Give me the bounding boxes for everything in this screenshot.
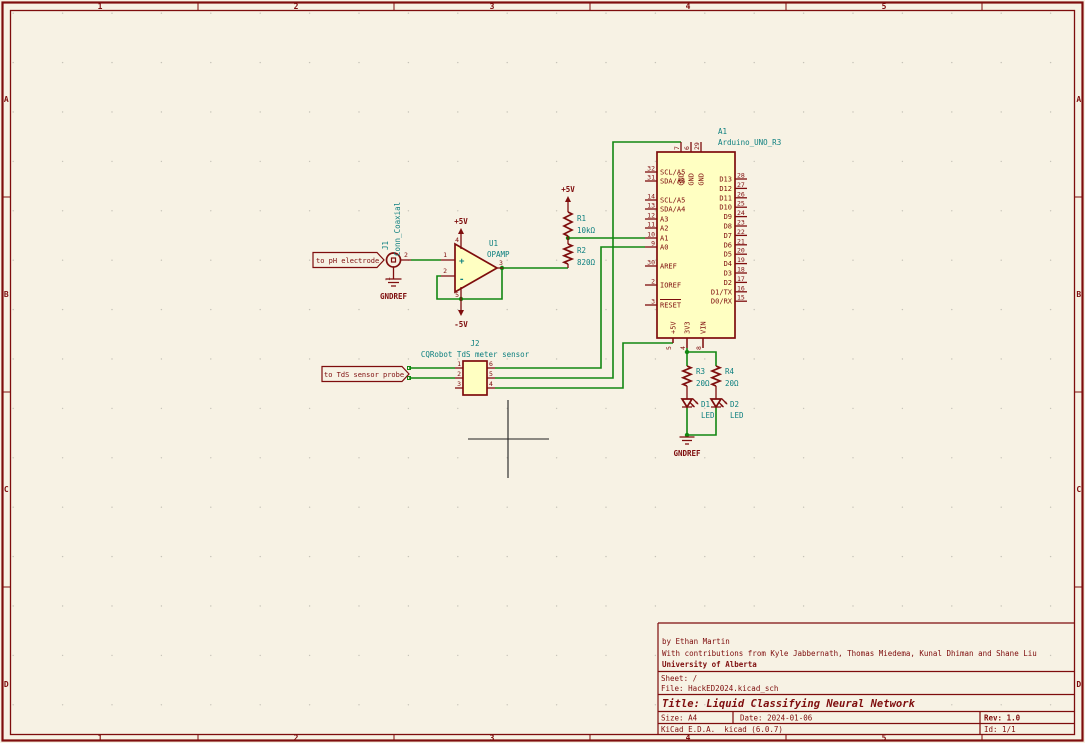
sheet-frame: 1122334455AABBCCDD — [3, 2, 1083, 743]
a1-pin-name-AREF: AREF — [660, 263, 677, 271]
r4-body — [712, 366, 720, 386]
d1-led-symbol[interactable] — [682, 399, 699, 408]
a1-pin-name-D10: D10 — [719, 204, 732, 212]
r2-value: 820Ω — [577, 258, 596, 267]
gnd-bars — [680, 437, 695, 444]
a1-pin-name-D3: D3 — [724, 270, 732, 278]
a1-pin-name-top-1: GND — [688, 173, 696, 186]
a1-pin-name-top-2: GND — [698, 173, 706, 186]
a1-pin-num-18: 18 — [737, 266, 745, 274]
kicad-schematic-sheet: 1122334455AABBCCDD by Ethan Martin With … — [0, 0, 1085, 743]
frame-col-top-2: 2 — [294, 2, 299, 11]
a1-pin-name-RESET: RESET — [660, 302, 682, 310]
r4-reference: R4 — [725, 367, 735, 376]
r3-body — [683, 366, 691, 386]
gndref-label-leds: GNDREF — [673, 449, 701, 458]
a1-pin-num-24: 24 — [737, 209, 745, 217]
a1-pin-name-D2: D2 — [724, 279, 732, 287]
title-block-title: Title: Liquid Classifying Neural Network — [662, 698, 916, 710]
d2-value: LED — [730, 411, 744, 420]
title-block-size: Size: A4 — [661, 714, 698, 723]
p5v-label-r1: +5V — [561, 185, 575, 194]
a1-pin-name-D4: D4 — [724, 260, 732, 268]
a1-pin-name-D0/RX: D0/RX — [711, 298, 733, 306]
a1-pin-name-D5: D5 — [724, 251, 732, 259]
frame-col-top-1: 1 — [98, 2, 103, 11]
frame-col-bottom-4: 4 — [686, 734, 691, 743]
a1-pin-name-SCL/A5: SCL/A5 — [660, 197, 685, 205]
gnd-symbol-leds[interactable]: GNDREF — [673, 437, 701, 458]
j2-value: CQRobot TdS meter sensor — [421, 350, 530, 359]
a1-pin-num-5: 5 — [665, 346, 673, 350]
a1-pin-num-6: 6 — [683, 146, 691, 150]
global-label-ph-electrode[interactable]: to pH electrode — [313, 253, 384, 268]
a1-pin-name-D6: D6 — [724, 241, 732, 249]
frame-row-right-D: D — [1076, 680, 1081, 689]
title-block-author: by Ethan Martin — [662, 637, 730, 646]
a1-pin-name-D12: D12 — [719, 185, 732, 193]
title-block-contributors: With contributions from Kyle Jabbernath,… — [662, 649, 1037, 658]
d2-reference: D2 — [730, 400, 739, 409]
a1-pin-num-22: 22 — [737, 228, 745, 236]
j2-tds-connector-symbol[interactable]: 123654 J2 CQRobot TdS meter sensor — [421, 339, 530, 395]
frame-row-left-C: C — [4, 485, 9, 494]
title-block-sheet: Sheet: / — [661, 674, 697, 683]
a1-pin-num-9: 9 — [651, 240, 655, 248]
frame-col-bottom-3: 3 — [490, 734, 495, 743]
grid-dots — [13, 13, 1052, 706]
p5v-arrow-icon-r1 — [565, 196, 571, 202]
j2-pin-num-5: 5 — [489, 370, 493, 378]
a1-pin-num-32: 32 — [647, 165, 655, 173]
title-block-tool: KiCad E.D.A. kicad (6.0.7) — [661, 725, 783, 734]
frame-col-top-3: 3 — [490, 2, 495, 11]
d1-value: LED — [701, 411, 715, 420]
tds-label-text: to TdS sensor probe — [324, 371, 404, 379]
r1-body — [564, 212, 572, 236]
d2-led-symbol[interactable] — [711, 399, 728, 408]
j2-body — [463, 361, 487, 395]
d1-reference: D1 — [701, 400, 710, 409]
frame-row-left-B: B — [4, 290, 9, 299]
a1-pin-num-17: 17 — [737, 275, 745, 283]
wire-branch-to-r4[interactable] — [687, 352, 716, 366]
a1-pin-num-11: 11 — [647, 221, 655, 229]
frame-zone-labels: 1122334455AABBCCDD — [3, 2, 1083, 743]
title-block-id: Id: 1/1 — [984, 725, 1016, 734]
a1-pin-num-13: 13 — [647, 202, 655, 210]
a1-pin-name-bottom-1: 3V3 — [684, 321, 692, 334]
frame-row-right-B: B — [1076, 290, 1081, 299]
opamp-pin1-number: 1 — [443, 251, 447, 259]
j1-coaxial-connector-symbol[interactable]: 2 1 J1 Conn_Coaxial GNDREF — [380, 202, 411, 301]
opamp-pin3-number: 3 — [499, 259, 503, 267]
frame-col-bottom-2: 2 — [294, 734, 299, 743]
a1-pin-num-30: 30 — [647, 259, 655, 267]
n5v-label: -5V — [454, 320, 468, 329]
opamp-pin5-number: 5 — [455, 291, 459, 299]
a1-pin-num-27: 27 — [737, 181, 745, 189]
a1-pin-name-D7: D7 — [724, 232, 732, 240]
j1-reference: J1 — [381, 241, 390, 250]
title-block: by Ethan Martin With contributions from … — [658, 623, 1075, 735]
j2-pin-num-1: 1 — [457, 360, 461, 368]
a1-pin-num-21: 21 — [737, 237, 745, 245]
r1-value: 10kΩ — [577, 226, 596, 235]
a1-pin-name-A0: A0 — [660, 244, 668, 252]
title-block-rev: Rev: 1.0 — [984, 714, 1021, 723]
a1-pin-num-29: 29 — [693, 142, 701, 150]
r4-value: 20Ω — [725, 379, 739, 388]
a1-value: Arduino_UNO_R3 — [718, 138, 781, 147]
r4-resistor-symbol[interactable]: R4 20Ω — [712, 366, 739, 388]
p5v-arrow-icon — [458, 228, 464, 234]
power-flag-n5v-opamp[interactable]: -5V — [454, 299, 468, 329]
a1-pin-num-14: 14 — [647, 193, 655, 201]
r2-body — [564, 244, 572, 264]
a1-pin-name-D1/TX: D1/TX — [711, 288, 733, 296]
frame-col-top-4: 4 — [686, 2, 691, 11]
j2-pin-num-4: 4 — [489, 380, 493, 388]
a1-pin-num-15: 15 — [737, 294, 745, 302]
frame-inner-border — [11, 11, 1075, 735]
j2-pin-num-2: 2 — [457, 370, 461, 378]
opamp-pin4-number: 4 — [455, 236, 459, 244]
gndref-label-j1: GNDREF — [380, 292, 408, 301]
a1-pin-name-bottom-0: +5V — [670, 321, 678, 334]
frame-row-right-C: C — [1076, 485, 1081, 494]
r2-reference: R2 — [577, 246, 586, 255]
opamp-minus-sign: - — [459, 275, 464, 285]
j2-pin-num-6: 6 — [489, 360, 493, 368]
opamp-plus-sign: + — [459, 257, 465, 267]
frame-row-right-A: A — [1076, 95, 1081, 104]
r2-resistor-symbol[interactable]: R2 820Ω — [564, 244, 596, 267]
j1-value: Conn_Coaxial — [393, 202, 402, 256]
a1-pin-num-4: 4 — [679, 346, 687, 350]
a1-pin-name-D13: D13 — [719, 176, 732, 184]
a1-pin-num-20: 20 — [737, 247, 745, 255]
a1-pin-num-3: 3 — [651, 298, 655, 306]
frame-col-bottom-5: 5 — [882, 734, 887, 743]
a1-arduino-symbol[interactable]: 32SCL/A531SDA/A414SCL/A513SDA/A412A311A2… — [645, 127, 781, 350]
frame-col-top-5: 5 — [882, 2, 887, 11]
r3-reference: R3 — [696, 367, 705, 376]
a1-pin-num-31: 31 — [647, 174, 655, 182]
u1-value: OPAMP — [487, 250, 510, 259]
a1-pin-name-bottom-2: VIN — [700, 321, 708, 334]
a1-pin-num-10: 10 — [647, 231, 655, 239]
j2-pin-num-3: 3 — [457, 380, 461, 388]
frame-row-left-A: A — [4, 95, 9, 104]
frame-col-bottom-1: 1 — [98, 734, 103, 743]
ph-label-text: to pH electrode — [316, 257, 379, 265]
a1-pin-num-16: 16 — [737, 284, 745, 292]
a1-pin-name-A1: A1 — [660, 235, 668, 243]
a1-pin-name-D11: D11 — [719, 194, 732, 202]
a1-pin-num-7: 7 — [673, 146, 681, 150]
p5v-label-opamp: +5V — [454, 217, 468, 226]
j1-pin2-number: 2 — [404, 251, 408, 259]
power-flag-p5v-opamp[interactable]: +5V — [454, 217, 468, 234]
title-block-date: Date: 2024-01-06 — [740, 714, 813, 723]
a1-reference: A1 — [718, 127, 727, 136]
a1-pin-num-19: 19 — [737, 256, 745, 264]
a1-pin-name-A2: A2 — [660, 225, 668, 233]
j1-center-pad — [392, 258, 396, 262]
u1-reference: U1 — [489, 239, 498, 248]
a1-pin-num-25: 25 — [737, 200, 745, 208]
a1-pin-num-12: 12 — [647, 212, 655, 220]
frame-row-left-D: D — [4, 680, 9, 689]
a1-pin-num-2: 2 — [651, 278, 655, 286]
n5v-arrow-icon — [458, 310, 464, 316]
j1-pins — [394, 260, 412, 279]
a1-pin-num-26: 26 — [737, 190, 745, 198]
u1-opamp-symbol[interactable]: + - 1 2 3 4 5 U1 OPAMP — [441, 234, 510, 299]
a1-pin-name-D8: D8 — [724, 223, 732, 231]
r3-value: 20Ω — [696, 379, 710, 388]
title-block-organization: University of Alberta — [662, 660, 757, 669]
opamp-pin2-number: 2 — [443, 267, 447, 275]
r1-reference: R1 — [577, 214, 586, 223]
a1-pin-name-SDA/A4: SDA/A4 — [660, 206, 685, 214]
a1-pin-name-A3: A3 — [660, 216, 668, 224]
a1-pin-name-top-0: GND — [678, 173, 686, 186]
a1-pin-name-D9: D9 — [724, 213, 732, 221]
cursor-crosshair — [468, 400, 549, 478]
a1-pin-num-28: 28 — [737, 172, 745, 180]
a1-pin-name-IOREF: IOREF — [660, 282, 681, 290]
global-label-tds-probe[interactable]: to TdS sensor probe — [322, 367, 409, 382]
frame-outer-border — [3, 3, 1083, 741]
crosshair-icon — [468, 400, 549, 478]
title-block-file: File: HackED2024.kicad_sch — [661, 684, 778, 693]
a1-pin-num-23: 23 — [737, 219, 745, 227]
j2-reference: J2 — [470, 339, 479, 348]
a1-pin-num-8: 8 — [695, 346, 703, 350]
